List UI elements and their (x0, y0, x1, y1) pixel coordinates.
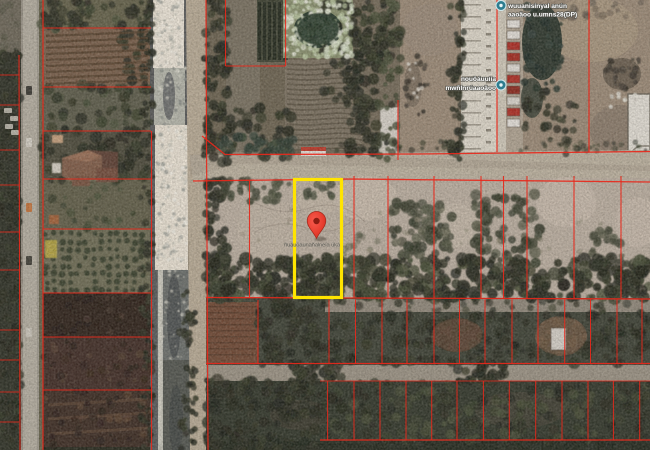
svg-text:wuuanisinyal anún: wuuanisinyal anún (507, 3, 567, 10)
svg-text:ñuáuöaunañalneía üká: ñuáuöaunañalneía üká (284, 243, 341, 249)
svg-text:aaoäoo u.umns28(DP): aaoäoo u.umns28(DP) (508, 12, 577, 19)
svg-text:mwñlnrúaaoäoo: mwñlnrúaaoäoo (445, 85, 496, 92)
svg-text:nouöáuuíia: nouöáuuíia (461, 76, 496, 83)
